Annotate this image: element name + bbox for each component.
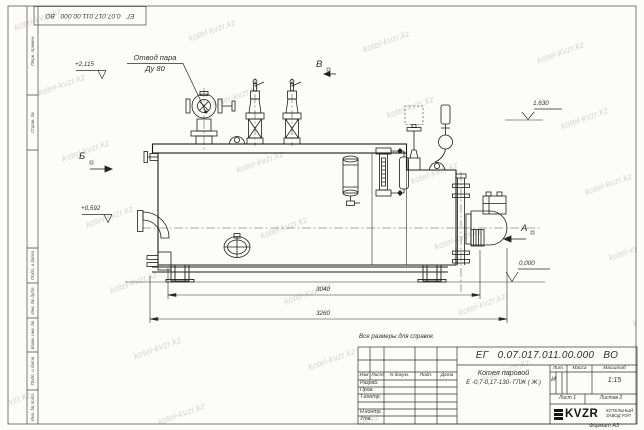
row-prov: Пров. xyxy=(360,388,374,393)
row-utv: Утв. xyxy=(360,417,372,422)
drawing-sheet: kotel-kvzr.kz xyxy=(0,0,644,430)
margin-label: Взам. инв. № xyxy=(28,318,38,352)
elevation-marker-right: 1,630 xyxy=(533,101,549,108)
view-label-a: А xyxy=(521,224,527,234)
column-header-docum: N докум. xyxy=(385,373,414,378)
elevation-marker-zero: 0,000 xyxy=(519,261,535,268)
logo-bars-icon xyxy=(554,409,563,419)
top-stamp-doc-number: ЕГ 0.07.017.011.00.000 ВО xyxy=(34,6,146,25)
margin-label: Инв. № подл. xyxy=(28,390,38,424)
logo-word: KVZR xyxy=(565,408,598,420)
column-header-list: Лист xyxy=(370,373,385,378)
sheets-info: Листов 2 xyxy=(586,396,636,401)
format-label: Формат А3 xyxy=(589,424,619,430)
scale-value: 1:15 xyxy=(592,377,637,384)
product-model: Е -0,7-0,17-130- ГЛЖ ( Ж ) xyxy=(457,380,550,387)
lit-header: Лит. xyxy=(550,366,567,371)
margin-label: Подп. и дата xyxy=(28,352,38,390)
doc-number: ЕГ 0.07.017.011.00.000 ВО xyxy=(458,348,636,364)
steam-outlet-label: Отвод пара xyxy=(126,54,184,62)
column-header-data: Дата xyxy=(437,373,457,378)
column-header-izm: Изм xyxy=(357,373,371,378)
column-header-podp: Подп. xyxy=(415,373,437,378)
reference-note: Все размеры для справок xyxy=(359,334,433,341)
dimension-3260: 3260 xyxy=(300,311,346,318)
view-label-b: Б xyxy=(79,152,85,162)
kvzr-logo: KVZR xyxy=(554,406,598,423)
mass-header: Масса xyxy=(567,366,592,371)
margin-label: Инв. № дубл. xyxy=(28,283,38,318)
steam-outlet-size-label: Ду 80 xyxy=(126,65,184,73)
row-nkontr: Н.контр. xyxy=(360,410,382,415)
sheet-info: Лист 1 xyxy=(551,396,584,401)
product-name: Котел паровой xyxy=(458,369,549,377)
scale-header: Масштаб xyxy=(592,366,637,371)
margin-label: Перв. примен. xyxy=(28,6,38,95)
elevation-marker-mid: +0,592 xyxy=(81,206,100,213)
lit-value: И xyxy=(550,377,557,384)
margin-label: Подп. и дата xyxy=(28,248,38,283)
company-name: КОТЕЛЬНЫЙ ЗАВОД РЭП xyxy=(606,408,636,419)
dimension-3040: 3040 xyxy=(300,287,346,294)
row-razrab: Разраб. xyxy=(360,381,379,386)
margin-label: Справ. № xyxy=(28,95,38,150)
view-label-v: В xyxy=(316,60,322,70)
elevation-marker-top: +2,115 xyxy=(75,62,94,69)
row-tkontr: Т.контр. xyxy=(360,395,381,400)
